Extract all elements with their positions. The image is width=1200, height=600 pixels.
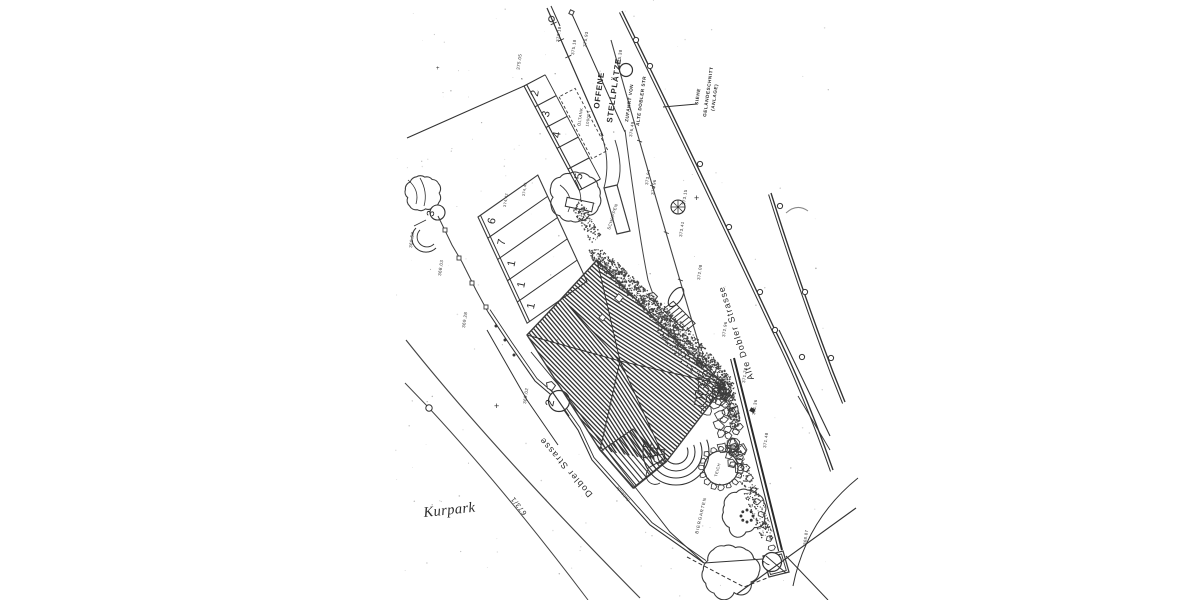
svg-text:+: + [694,193,700,203]
svg-text:+: + [436,66,440,72]
svg-text:+: + [494,401,500,411]
